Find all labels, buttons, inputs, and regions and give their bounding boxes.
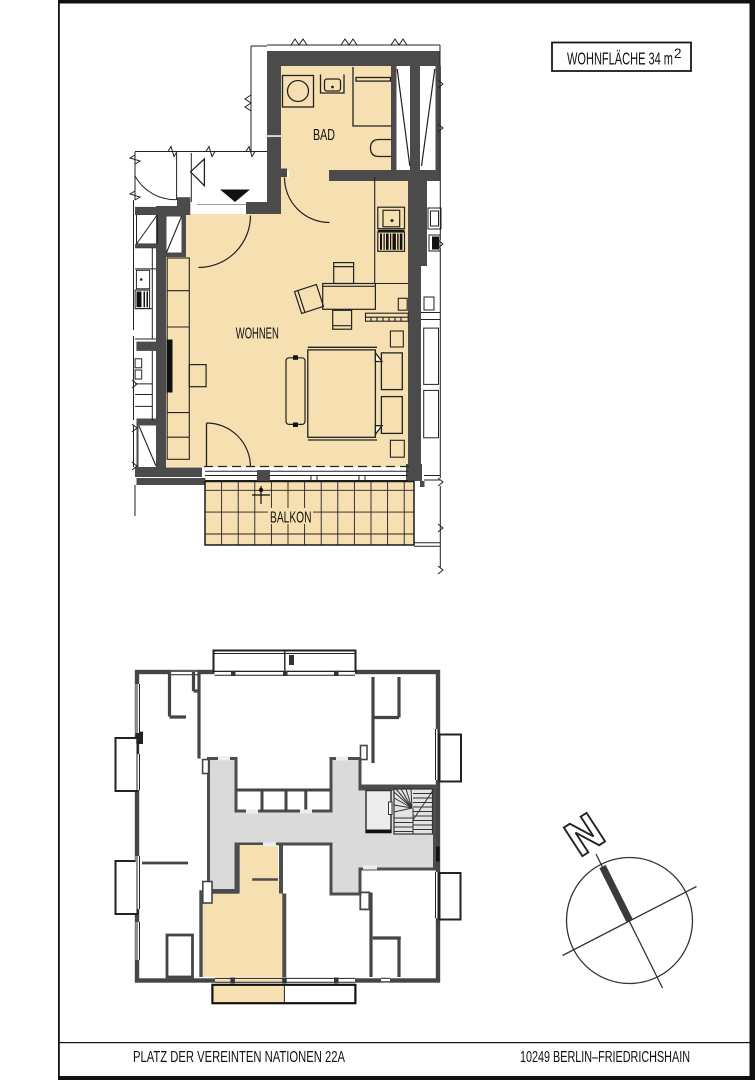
svg-text:10249 BERLIN–FRIEDRICHSHAIN: 10249 BERLIN–FRIEDRICHSHAIN [520,1049,690,1066]
svg-text:BAD: BAD [313,127,335,144]
svg-text:WOHNEN: WOHNEN [236,326,279,343]
svg-text:2: 2 [674,46,682,61]
svg-text:WOHNFLÄCHE 34 m: WOHNFLÄCHE 34 m [567,49,673,69]
svg-text:PLATZ DER VEREINTEN NATIONEN 2: PLATZ DER VEREINTEN NATIONEN 22A [133,1049,345,1066]
svg-text:BALKON: BALKON [270,510,312,527]
